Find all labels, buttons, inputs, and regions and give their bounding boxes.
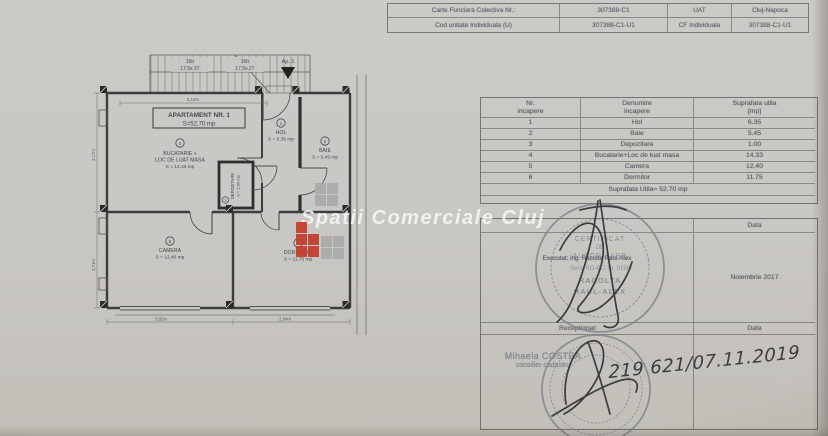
scanned-document-photo: 16tr 17,5x 27 16tr 17,5x 27 Ap. 1 bbox=[0, 0, 828, 436]
photo-vignette bbox=[0, 0, 828, 436]
